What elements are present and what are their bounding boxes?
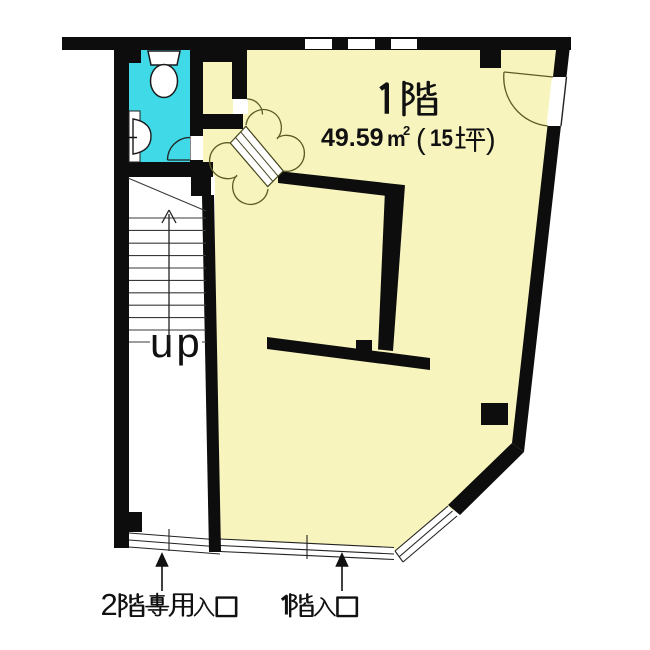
svg-text:49.59: 49.59 — [321, 124, 384, 152]
svg-text:2: 2 — [403, 123, 410, 138]
svg-text:up: up — [150, 319, 203, 366]
svg-text:): ) — [486, 124, 496, 156]
svg-text:(: ( — [416, 124, 426, 156]
svg-text:15: 15 — [430, 125, 453, 152]
svg-text:2: 2 — [101, 587, 118, 622]
